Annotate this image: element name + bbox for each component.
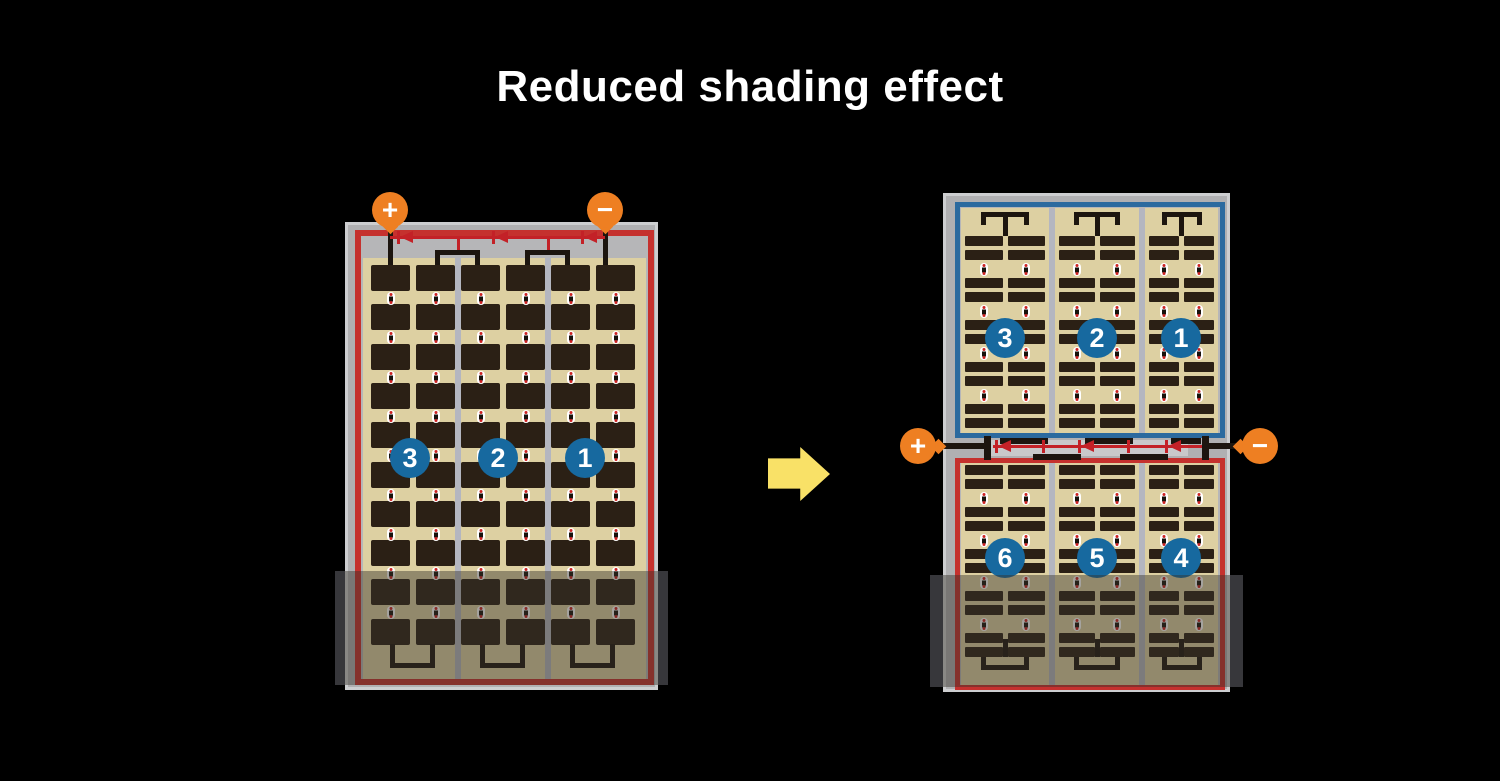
half-cell-bar bbox=[1059, 404, 1095, 414]
string-number-circle: 6 bbox=[985, 538, 1025, 578]
half-cell-bar bbox=[1100, 479, 1136, 489]
solar-cell bbox=[551, 540, 590, 566]
junction-end-bar bbox=[1202, 436, 1209, 460]
half-cell-bar bbox=[965, 376, 1003, 386]
solar-cell bbox=[596, 422, 635, 448]
cell-connector bbox=[522, 449, 530, 462]
cell-connector bbox=[1160, 389, 1168, 402]
shading-overlay-right bbox=[943, 575, 1230, 687]
cell-connector bbox=[1113, 305, 1121, 318]
solar-cell bbox=[461, 344, 500, 370]
cell-connector bbox=[1195, 305, 1203, 318]
half-cell-bar bbox=[1149, 292, 1179, 302]
cell-connector bbox=[567, 489, 575, 502]
string-number-circle: 1 bbox=[565, 438, 605, 478]
cell-connector bbox=[477, 331, 485, 344]
solar-cell bbox=[371, 344, 410, 370]
cell-connector bbox=[432, 528, 440, 541]
cell-connector bbox=[387, 528, 395, 541]
cell-connector bbox=[980, 347, 988, 360]
solar-cell bbox=[416, 304, 455, 330]
cell-connector bbox=[1022, 305, 1030, 318]
bypass-diode-icon bbox=[1081, 440, 1094, 452]
terminal-positive: + bbox=[372, 192, 408, 228]
solar-cell bbox=[551, 344, 590, 370]
half-cell-bar bbox=[1100, 236, 1136, 246]
terminal-positive: + bbox=[900, 428, 936, 464]
half-cell-bar bbox=[1184, 404, 1214, 414]
half-cell-bar bbox=[1008, 250, 1046, 260]
solar-cell bbox=[416, 501, 455, 527]
cell-connector bbox=[612, 489, 620, 502]
half-cell-bar bbox=[965, 404, 1003, 414]
terminal-negative: − bbox=[587, 192, 623, 228]
solar-cell bbox=[371, 540, 410, 566]
half-cell-bar bbox=[1184, 376, 1214, 386]
half-cell-bar bbox=[1008, 292, 1046, 302]
half-cell-bar bbox=[1149, 507, 1179, 517]
cell-connector bbox=[1195, 492, 1203, 505]
cell-connector bbox=[1113, 347, 1121, 360]
half-cell-bar bbox=[965, 236, 1003, 246]
cell-connector bbox=[1022, 347, 1030, 360]
half-cell-bar bbox=[1100, 404, 1136, 414]
cell-connector bbox=[1073, 263, 1081, 276]
cell-connector bbox=[1113, 263, 1121, 276]
cell-connector bbox=[1195, 263, 1203, 276]
junction-end-bar bbox=[984, 436, 991, 460]
half-cell-bar bbox=[1059, 479, 1095, 489]
half-cell-bar bbox=[1059, 250, 1095, 260]
half-cell-bar bbox=[1149, 465, 1179, 475]
half-cell-bar bbox=[1149, 404, 1179, 414]
cell-connector bbox=[612, 292, 620, 305]
cell-connector bbox=[980, 263, 988, 276]
solar-cell bbox=[461, 304, 500, 330]
cell-connector bbox=[522, 410, 530, 423]
solar-cell bbox=[461, 501, 500, 527]
solar-cell bbox=[596, 304, 635, 330]
half-cell-bar bbox=[1100, 278, 1136, 288]
half-cell-bar bbox=[965, 507, 1003, 517]
solar-cell bbox=[461, 540, 500, 566]
diode-wire-tick bbox=[547, 236, 550, 251]
half-cell-bar bbox=[1100, 250, 1136, 260]
solar-cell bbox=[371, 501, 410, 527]
half-cell-bar bbox=[1008, 465, 1046, 475]
solar-cell bbox=[461, 383, 500, 409]
half-cell-bar bbox=[1008, 278, 1046, 288]
cell-connector bbox=[567, 331, 575, 344]
cell-connector bbox=[1113, 389, 1121, 402]
cell-connector bbox=[1160, 305, 1168, 318]
cell-connector bbox=[432, 371, 440, 384]
busbar-bracket-top bbox=[1074, 212, 1120, 225]
cell-connector bbox=[1022, 263, 1030, 276]
solar-cell bbox=[371, 383, 410, 409]
half-cell-bar bbox=[965, 362, 1003, 372]
bypass-diode-icon bbox=[584, 231, 597, 243]
half-cell-bar bbox=[1149, 479, 1179, 489]
half-cell-bar bbox=[1184, 479, 1214, 489]
half-cell-bar bbox=[1008, 507, 1046, 517]
cell-connector bbox=[522, 331, 530, 344]
junction-busbar-tab bbox=[1120, 454, 1168, 460]
cell-connector bbox=[432, 331, 440, 344]
half-cell-bar bbox=[965, 418, 1003, 428]
busbar-bracket-top bbox=[981, 212, 1029, 225]
half-cell-bar bbox=[1149, 376, 1179, 386]
cell-connector bbox=[567, 371, 575, 384]
half-cell-bar bbox=[1149, 236, 1179, 246]
half-cell-bar bbox=[1184, 465, 1214, 475]
half-cell-bar bbox=[1149, 250, 1179, 260]
bypass-diode-icon bbox=[1168, 440, 1181, 452]
solar-cell bbox=[596, 265, 635, 291]
half-cell-bar bbox=[1059, 292, 1095, 302]
cell-connector bbox=[387, 371, 395, 384]
cell-connector bbox=[522, 528, 530, 541]
half-cell-bar bbox=[1008, 236, 1046, 246]
cell-connector bbox=[612, 410, 620, 423]
half-cell-bar bbox=[1100, 521, 1136, 531]
solar-cell bbox=[596, 344, 635, 370]
half-cell-bar bbox=[1008, 418, 1046, 428]
solar-cell bbox=[506, 383, 545, 409]
solar-cell bbox=[506, 344, 545, 370]
half-cell-bar bbox=[1059, 376, 1095, 386]
cell-connector bbox=[567, 410, 575, 423]
half-cell-bar bbox=[1059, 236, 1095, 246]
cell-connector bbox=[387, 292, 395, 305]
string-number-circle: 1 bbox=[1161, 318, 1201, 358]
solar-cell bbox=[596, 540, 635, 566]
half-cell-bar bbox=[965, 292, 1003, 302]
cell-connector bbox=[522, 292, 530, 305]
diagram-title: Reduced shading effect bbox=[0, 62, 1500, 112]
solar-cell bbox=[416, 344, 455, 370]
half-cell-bar bbox=[1008, 362, 1046, 372]
string-number-circle: 3 bbox=[390, 438, 430, 478]
half-cell-bar bbox=[1100, 507, 1136, 517]
cell-connector bbox=[1113, 534, 1121, 547]
half-cell-bar bbox=[1100, 292, 1136, 302]
cell-connector bbox=[1195, 389, 1203, 402]
half-cell-bar bbox=[1184, 292, 1214, 302]
half-cell-bar bbox=[1100, 465, 1136, 475]
cell-connector bbox=[477, 410, 485, 423]
solar-cell bbox=[551, 383, 590, 409]
diagram-canvas: Reduced shading effect 321+− 321654+− bbox=[0, 0, 1500, 781]
half-cell-bar bbox=[1100, 376, 1136, 386]
bypass-diode-icon bbox=[495, 231, 508, 243]
cell-connector bbox=[477, 292, 485, 305]
bypass-diode-icon bbox=[400, 231, 413, 243]
half-cell-bar bbox=[1184, 250, 1214, 260]
solar-cell bbox=[416, 383, 455, 409]
string-number-circle: 2 bbox=[478, 438, 518, 478]
half-cell-bar bbox=[1059, 418, 1095, 428]
half-cell-bar bbox=[1184, 507, 1214, 517]
half-cell-bar bbox=[1008, 404, 1046, 414]
cell-connector bbox=[567, 528, 575, 541]
string-number-circle: 3 bbox=[985, 318, 1025, 358]
solar-cell bbox=[506, 540, 545, 566]
cell-connector bbox=[1073, 492, 1081, 505]
diode-wire-tick bbox=[457, 236, 460, 251]
cell-connector bbox=[567, 292, 575, 305]
half-cell-bar bbox=[1184, 236, 1214, 246]
cell-connector bbox=[522, 489, 530, 502]
terminal-negative: − bbox=[1242, 428, 1278, 464]
half-cell-bar bbox=[965, 465, 1003, 475]
cell-connector bbox=[1022, 389, 1030, 402]
cell-connector bbox=[980, 492, 988, 505]
solar-cell bbox=[416, 540, 455, 566]
cell-connector bbox=[432, 489, 440, 502]
solar-cell bbox=[596, 383, 635, 409]
solar-cell bbox=[461, 265, 500, 291]
cell-connector bbox=[1022, 492, 1030, 505]
cell-connector bbox=[612, 371, 620, 384]
shading-overlay-left bbox=[345, 571, 658, 685]
cell-connector bbox=[980, 389, 988, 402]
half-cell-bar bbox=[1008, 479, 1046, 489]
half-cell-bar bbox=[1059, 278, 1095, 288]
half-cell-bar bbox=[1100, 362, 1136, 372]
half-cell-bar bbox=[1059, 521, 1095, 531]
half-cell-bar bbox=[1149, 278, 1179, 288]
half-cell-bar bbox=[1059, 507, 1095, 517]
half-cell-bar bbox=[1184, 362, 1214, 372]
cell-connector bbox=[387, 489, 395, 502]
solar-cell bbox=[551, 501, 590, 527]
cell-connector bbox=[1073, 534, 1081, 547]
cell-connector bbox=[612, 331, 620, 344]
half-cell-bar bbox=[1059, 465, 1095, 475]
string-number-circle: 5 bbox=[1077, 538, 1117, 578]
half-cell-bar bbox=[1184, 418, 1214, 428]
panel-divider bbox=[1049, 208, 1055, 433]
half-cell-bar bbox=[1149, 418, 1179, 428]
solar-cell bbox=[596, 501, 635, 527]
half-cell-bar bbox=[1149, 521, 1179, 531]
half-cell-bar bbox=[965, 521, 1003, 531]
half-cell-bar bbox=[965, 250, 1003, 260]
busbar-bracket-top bbox=[435, 250, 480, 265]
half-cell-bar bbox=[1059, 362, 1095, 372]
cell-connector bbox=[980, 305, 988, 318]
string-number-circle: 2 bbox=[1077, 318, 1117, 358]
cell-connector bbox=[522, 371, 530, 384]
cell-connector bbox=[980, 534, 988, 547]
cell-connector bbox=[612, 449, 620, 462]
half-cell-bar bbox=[1184, 521, 1214, 531]
bypass-diode-icon bbox=[998, 440, 1011, 452]
solar-cell bbox=[506, 501, 545, 527]
cell-connector bbox=[477, 528, 485, 541]
half-cell-bar bbox=[1008, 376, 1046, 386]
half-cell-bar bbox=[965, 479, 1003, 489]
diode-wire-tick bbox=[1042, 440, 1045, 453]
string-number-circle: 4 bbox=[1161, 538, 1201, 578]
cell-connector bbox=[1022, 534, 1030, 547]
solar-cell bbox=[371, 304, 410, 330]
right-arrow-icon bbox=[768, 447, 830, 501]
half-cell-bar bbox=[1008, 521, 1046, 531]
panel-divider bbox=[1139, 208, 1145, 433]
solar-cell bbox=[371, 265, 410, 291]
solar-cell bbox=[506, 304, 545, 330]
busbar-bracket-top bbox=[525, 250, 570, 265]
half-cell-bar bbox=[1100, 418, 1136, 428]
cell-connector bbox=[1113, 492, 1121, 505]
cell-connector bbox=[612, 528, 620, 541]
cell-connector bbox=[1160, 492, 1168, 505]
cell-connector bbox=[432, 410, 440, 423]
cell-connector bbox=[1073, 389, 1081, 402]
junction-busbar-tab bbox=[1033, 454, 1081, 460]
cell-connector bbox=[477, 489, 485, 502]
half-cell-bar bbox=[965, 278, 1003, 288]
cell-connector bbox=[432, 292, 440, 305]
cell-connector bbox=[387, 331, 395, 344]
cell-connector bbox=[477, 371, 485, 384]
busbar-bracket-top bbox=[1162, 212, 1202, 225]
solar-cell bbox=[551, 265, 590, 291]
solar-cell bbox=[416, 265, 455, 291]
solar-cell bbox=[551, 304, 590, 330]
cell-connector bbox=[432, 449, 440, 462]
cell-connector bbox=[1073, 305, 1081, 318]
cell-connector bbox=[387, 410, 395, 423]
cell-connector bbox=[1160, 263, 1168, 276]
solar-cell bbox=[506, 265, 545, 291]
half-cell-bar bbox=[1149, 362, 1179, 372]
half-cell-bar bbox=[1184, 278, 1214, 288]
diode-wire-tick bbox=[1127, 440, 1130, 453]
